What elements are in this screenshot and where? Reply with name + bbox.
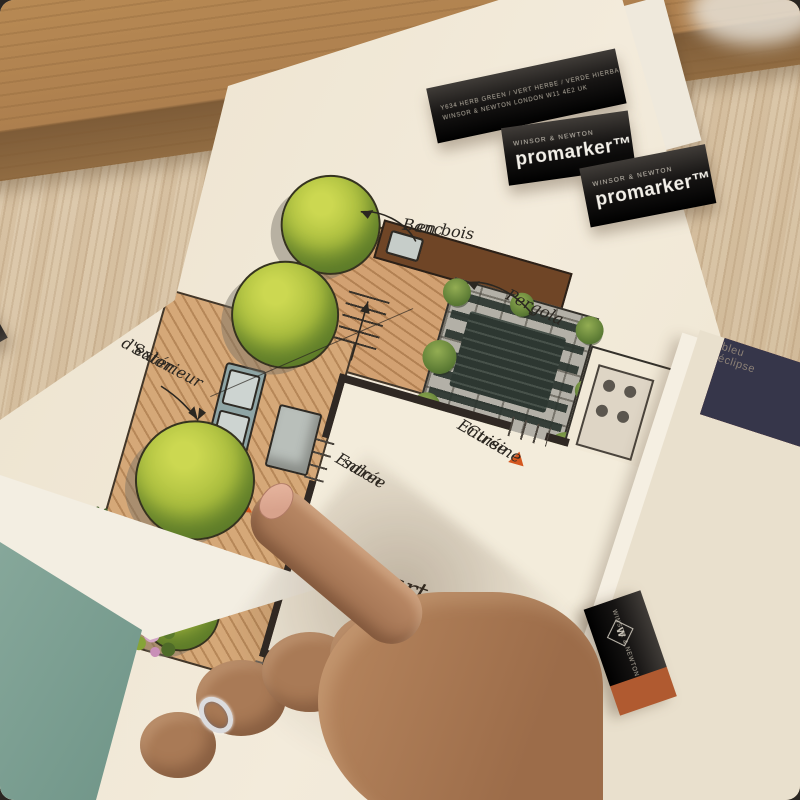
logo-letter: W	[613, 627, 626, 640]
photo-scene: ❋ Banc en bois	[0, 0, 800, 800]
